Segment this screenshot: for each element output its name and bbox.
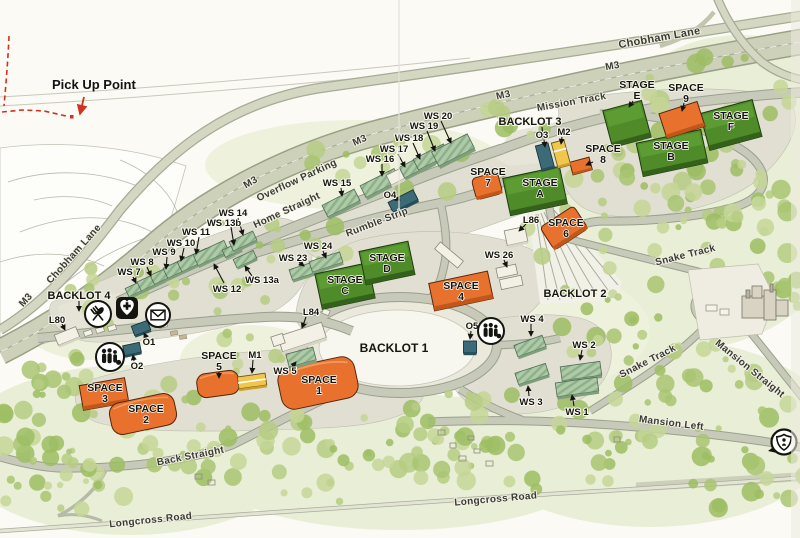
post-icon (146, 303, 170, 327)
label-l80: L80 (49, 315, 65, 326)
label-ws19: WS 19 (410, 121, 439, 132)
studio-site-map: WS 20 WS 19 WS 18 WS 17 WS 16 WS 15 WS 1… (0, 0, 800, 538)
label-o2: O2 (131, 361, 144, 372)
label-ws26: WS 26 (485, 250, 514, 261)
label-ws13a: WS 13a (245, 275, 280, 286)
label-ws11: WS 11 (182, 227, 211, 238)
label-m1: M1 (248, 350, 262, 361)
label-ws13b: WS 13b (207, 218, 242, 229)
label-ws5: WS 5 (273, 366, 297, 377)
people-icon-east (478, 318, 504, 344)
page-edge-shadow (791, 0, 800, 538)
label-ws4: WS 4 (520, 314, 544, 325)
label-m2: M2 (557, 127, 570, 138)
building-o5 (464, 341, 477, 355)
label-ws16: WS 16 (366, 154, 395, 165)
label-ws12: WS 12 (213, 284, 242, 295)
label-ws1: WS 1 (565, 407, 589, 418)
first-aid-icon (116, 297, 138, 319)
label-ws15: WS 15 (323, 178, 352, 189)
pick-up-point-label: Pick Up Point (52, 77, 136, 92)
label-backlot4: BACKLOT 4 (48, 290, 112, 302)
label-ws3: WS 3 (519, 397, 542, 408)
people-icon (96, 343, 124, 371)
label-ws7: WS 7 (117, 267, 140, 278)
label-ws23: WS 23 (279, 253, 308, 264)
label-ws24: WS 24 (304, 241, 333, 252)
label-l86: L86 (523, 215, 539, 226)
catering-icon (85, 301, 111, 327)
label-ws9: WS 9 (152, 247, 175, 258)
label-l84: L84 (303, 307, 320, 318)
label-o4: O4 (384, 190, 397, 201)
label-backlot1: BACKLOT 1 (360, 341, 429, 355)
label-o3: O3 (536, 130, 549, 141)
label-backlot2: BACKLOT 2 (544, 288, 607, 300)
label-o1: O1 (143, 337, 156, 348)
label-ws2: WS 2 (572, 340, 595, 351)
label-backlot3: BACKLOT 3 (499, 116, 562, 128)
